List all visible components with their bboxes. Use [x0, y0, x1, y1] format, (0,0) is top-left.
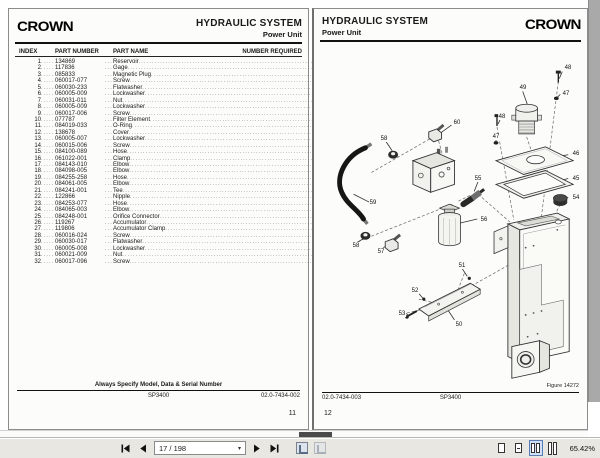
row-part-name: Screw [113, 143, 130, 149]
figure-callout: 52 [411, 288, 419, 294]
row-index: 4 [19, 78, 41, 84]
crown-logo: CROWN [525, 16, 581, 32]
row-part-number: 060017-096 [55, 259, 105, 265]
right-page-footer: Figure 14272 02.0-7434-003 SP3400 [322, 383, 579, 402]
row-part-name: Nut [113, 98, 122, 104]
footer-rule [322, 392, 579, 394]
row-part-number: 084241-001 [55, 188, 105, 194]
row-part-name: Cover [113, 130, 129, 136]
row-index: 21 [19, 188, 41, 194]
figure-callout: 48 [498, 114, 506, 120]
document-canvas: CROWN HYDRAULIC SYSTEM Power Unit INDEX … [0, 0, 600, 430]
last-page-button[interactable] [268, 441, 282, 455]
right-page: HYDRAULIC SYSTEM Power Unit CROWN [312, 8, 588, 430]
row-part-name: Lockwasher [113, 91, 145, 97]
continuous-facing-icon [548, 442, 552, 455]
pdf-viewer: CROWN HYDRAULIC SYSTEM Power Unit INDEX … [0, 0, 600, 458]
row-index: 12 [19, 130, 41, 136]
zoom-level[interactable]: 65.42% [570, 444, 595, 453]
table-header-rule [15, 56, 302, 57]
row-index: 18 [19, 168, 41, 174]
left-page-header: CROWN HYDRAULIC SYSTEM Power Unit [9, 9, 308, 39]
row-part-number: 084065-003 [55, 207, 105, 213]
right-page-header: HYDRAULIC SYSTEM Power Unit CROWN [314, 9, 587, 37]
figure-callout: 46 [572, 151, 580, 157]
row-index: 6 [19, 91, 41, 97]
row-part-name: Elbow [113, 207, 129, 213]
row-part-number: 060005-007 [55, 136, 105, 142]
row-part-name: Reservoir [113, 59, 139, 65]
last-page-icon [270, 444, 280, 453]
row-part-name: Flatwasher [113, 239, 142, 245]
next-page-button[interactable] [250, 441, 264, 455]
col-number-required: NUMBER REQUIRED [242, 49, 302, 55]
row-index: 23 [19, 201, 41, 207]
row-part-number: 060031-011 [55, 98, 105, 104]
doc-number: 02.0-7434-002 [261, 393, 300, 399]
row-index: 8 [19, 104, 41, 110]
header-rule [15, 42, 302, 44]
row-part-name: Elbow [113, 168, 129, 174]
row-index: 24 [19, 207, 41, 213]
row-index: 22 [19, 194, 41, 200]
col-part-number: PART NUMBER [55, 49, 113, 55]
row-part-number: 119806 [55, 226, 105, 232]
row-index: 31 [19, 252, 41, 258]
row-part-number: 084100-089 [55, 149, 105, 155]
model-number: SP3400 [148, 393, 169, 399]
row-part-number: 119267 [55, 220, 105, 226]
continuous-facing-view-button[interactable] [546, 440, 560, 456]
row-index: 3 [19, 72, 41, 78]
row-part-number: 122866 [55, 194, 105, 200]
col-index: INDEX [19, 49, 55, 55]
single-page-icon [498, 443, 505, 453]
next-view-button[interactable] [314, 442, 326, 454]
row-part-name: Tee [113, 188, 123, 194]
page-title: HYDRAULIC SYSTEM [196, 18, 302, 29]
row-part-number: 060005-008 [55, 246, 105, 252]
figure-callout: 45 [572, 176, 580, 182]
row-index: 30 [19, 246, 41, 252]
figure-callout: 58 [352, 243, 360, 249]
row-part-number: 134869 [55, 59, 105, 65]
model-number: SP3400 [440, 395, 461, 401]
footer-rule [17, 390, 300, 392]
row-index: 2 [19, 65, 41, 71]
table-row: 32060017-096Screw2 [19, 259, 302, 265]
row-part-number: 138678 [55, 130, 105, 136]
doc-number: 02.0-7434-003 [322, 395, 361, 401]
row-part-number: 060016-024 [55, 233, 105, 239]
row-index: 26 [19, 220, 41, 226]
row-part-number: 060005-009 [55, 104, 105, 110]
figure-callout: 51 [458, 263, 466, 269]
row-part-name: Gage [113, 65, 128, 71]
figure-callout: 58 [380, 136, 388, 142]
row-index: 10 [19, 117, 41, 123]
row-index: 27 [19, 226, 41, 232]
continuous-icon [515, 443, 522, 453]
prev-page-icon [139, 444, 147, 453]
figure-callout: 57 [377, 249, 385, 255]
row-index: 13 [19, 136, 41, 142]
vertical-scrollbar[interactable] [588, 0, 600, 402]
row-index: 14 [19, 143, 41, 149]
figure-callout: 47 [492, 134, 500, 140]
row-part-name: Elbow [113, 162, 129, 168]
prev-page-button[interactable] [136, 441, 150, 455]
page-indicator: 17 / 198 [159, 444, 186, 453]
footer-note: Always Specify Model, Data & Serial Numb… [17, 382, 300, 388]
row-part-name: Magnetic Plug [113, 72, 151, 78]
row-part-name: Elbow [113, 181, 129, 187]
exploded-diagram [314, 9, 587, 429]
row-part-number: 084098-005 [55, 168, 105, 174]
row-index: 1 [19, 59, 41, 65]
row-part-name: Filter Element [113, 117, 150, 123]
row-part-name: Hose [113, 201, 127, 207]
row-index: 16 [19, 156, 41, 162]
row-part-number: 060030-017 [55, 239, 105, 245]
row-part-number: 061022-001 [55, 156, 105, 162]
next-page-icon [253, 444, 261, 453]
left-page: CROWN HYDRAULIC SYSTEM Power Unit INDEX … [8, 8, 309, 430]
row-part-name: Hose [113, 175, 127, 181]
row-part-name: Accumulator [113, 220, 146, 226]
row-index: 32 [19, 259, 41, 265]
prev-view-button[interactable] [296, 442, 308, 454]
horizontal-scrollbar[interactable] [0, 430, 588, 437]
col-part-name: PART NAME [113, 49, 242, 55]
figure-callout: 60 [453, 120, 461, 126]
row-index: 17 [19, 162, 41, 168]
page-title: HYDRAULIC SYSTEM [322, 16, 428, 27]
row-part-number: 060021-009 [55, 252, 105, 258]
facing-pages-icon [531, 443, 535, 453]
first-page-icon [120, 444, 130, 453]
figure-callout: 55 [474, 176, 482, 182]
row-part-name: Nut [113, 252, 122, 258]
row-part-name: Hose [113, 149, 127, 155]
row-part-number: 084248-001 [55, 214, 105, 220]
row-part-number: 084255-258 [55, 175, 105, 181]
row-index: 7 [19, 98, 41, 104]
row-part-name: Screw [113, 233, 130, 239]
figure-caption: Figure 14272 [322, 383, 579, 389]
row-part-number: 084143-010 [55, 162, 105, 168]
figure-callout: 54 [572, 195, 580, 201]
row-part-name: Screw [113, 111, 130, 117]
row-index: 25 [19, 214, 41, 220]
table-header: INDEX PART NUMBER PART NAME NUMBER REQUI… [19, 49, 302, 55]
page-number: 11 [289, 410, 296, 417]
status-toolbar: 17 / 198 ▾ [0, 437, 600, 458]
page-number-input[interactable]: 17 / 198 ▾ [154, 441, 246, 455]
row-index: 9 [19, 111, 41, 117]
row-part-name: Flatwasher [113, 85, 142, 91]
figure-callout: 48 [564, 65, 572, 71]
row-part-number: 060017-006 [55, 111, 105, 117]
row-part-number: 084019-033 [55, 123, 105, 129]
first-page-button[interactable] [118, 441, 132, 455]
row-part-name: Screw [113, 259, 130, 265]
row-part-name: Nipple [113, 194, 130, 200]
left-page-footer: Always Specify Model, Data & Serial Numb… [17, 382, 300, 400]
crown-logo: CROWN [17, 18, 73, 34]
figure-callout: 59 [369, 200, 377, 206]
parts-table-body: 1134869Reservoir12117836Gage13085833Magn… [19, 59, 302, 265]
page-subtitle: Power Unit [196, 30, 302, 39]
row-part-number: 084061-005 [55, 181, 105, 187]
row-part-number: 117836 [55, 65, 105, 71]
row-part-name: Clamp [113, 156, 130, 162]
figure-callout: 50 [455, 322, 463, 328]
row-index: 19 [19, 175, 41, 181]
row-part-name: Lockwasher [113, 136, 145, 142]
row-index: 20 [19, 181, 41, 187]
row-part-name: Screw [113, 78, 130, 84]
row-part-number: 060030-233 [55, 85, 105, 91]
header-rule [320, 40, 581, 42]
row-part-name: Orifice Connector [113, 214, 160, 220]
row-part-number: 060017-077 [55, 78, 105, 84]
page-subtitle: Power Unit [322, 28, 428, 37]
row-index: 5 [19, 85, 41, 91]
row-part-number: 084253-077 [55, 201, 105, 207]
figure-callout: 53 [398, 311, 406, 317]
single-page-view-button[interactable] [495, 440, 509, 456]
figure-callout: 47 [562, 91, 570, 97]
row-part-number: 085833 [55, 72, 105, 78]
row-part-name: Lockwasher [113, 246, 145, 252]
row-part-number: 060015-006 [55, 143, 105, 149]
row-part-name: Lockwasher [113, 104, 145, 110]
figure-callout: 49 [519, 85, 527, 91]
page-dropdown-caret[interactable]: ▾ [238, 445, 241, 452]
row-part-name: O-Ring [113, 123, 132, 129]
row-part-number: 077787 [55, 117, 105, 123]
row-index: 28 [19, 233, 41, 239]
row-index: 11 [19, 123, 41, 129]
exploded-view-figure: 48474948474645555460585958575651525350 [314, 9, 587, 429]
row-index: 29 [19, 239, 41, 245]
row-part-name: Accumulator Clamp [113, 226, 165, 232]
facing-pages-view-button[interactable] [529, 440, 543, 456]
row-part-number: 060005-009 [55, 91, 105, 97]
continuous-view-button[interactable] [512, 440, 526, 456]
row-index: 15 [19, 149, 41, 155]
figure-callout: 56 [480, 217, 488, 223]
